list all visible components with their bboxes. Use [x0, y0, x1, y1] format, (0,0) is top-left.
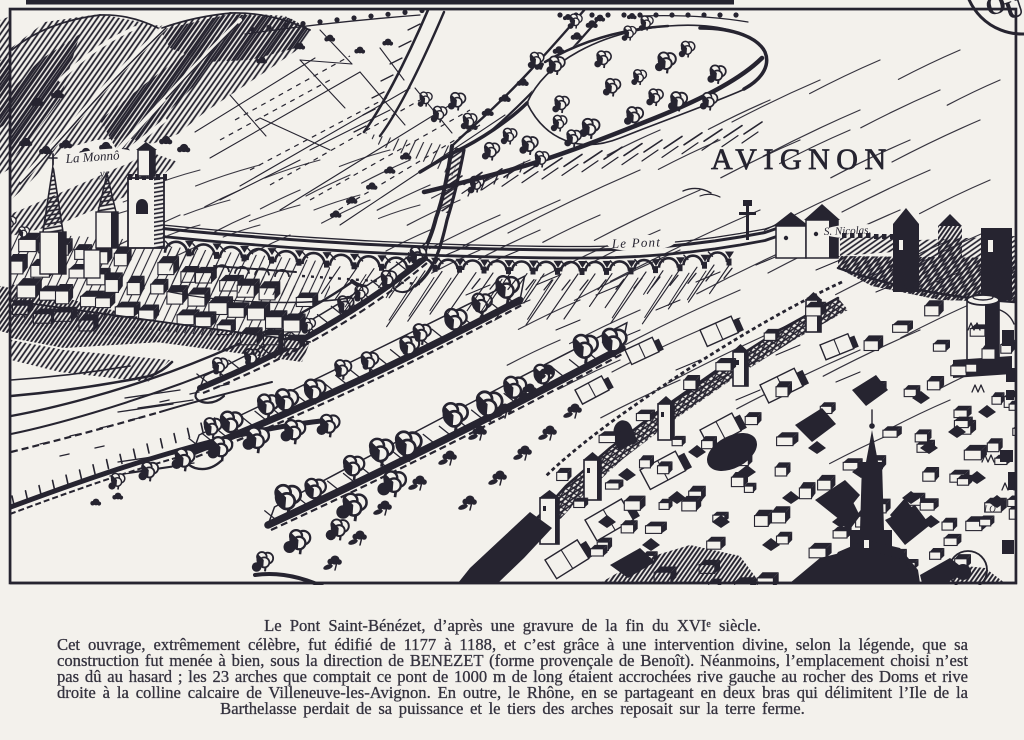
svg-text:S. Nicolas.: S. Nicolas. — [824, 224, 872, 238]
svg-text:ye.: ye. — [98, 167, 112, 180]
svg-text:Le Pont: Le Pont — [611, 234, 662, 251]
svg-text:I O: I O — [983, 504, 996, 514]
svg-text:AVIGNON: AVIGNON — [711, 143, 893, 176]
